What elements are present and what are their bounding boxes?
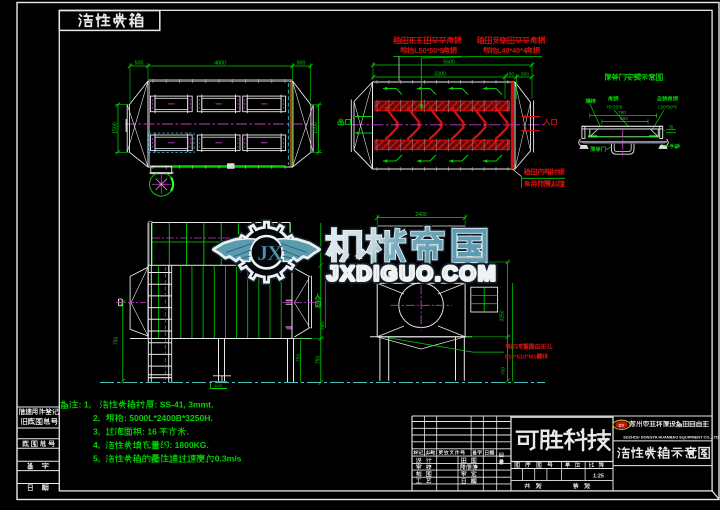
svg-text:2850: 2850 — [315, 297, 321, 308]
svg-text:SUZHOU DONGYA HUANBAO EQUIPMEN: SUZHOU DONGYA HUANBAO EQUIPMENT CO.,LTD — [623, 434, 719, 439]
svg-text:1500: 1500 — [313, 122, 319, 134]
svg-text:L50*50*5: L50*50*5 — [414, 47, 444, 55]
svg-text:L40*40*4: L40*40*4 — [497, 47, 527, 55]
svg-text:780: 780 — [320, 322, 326, 330]
svg-text:750: 750 — [501, 367, 507, 375]
svg-text:35: 35 — [669, 124, 674, 129]
svg-text:750: 750 — [114, 337, 120, 346]
svg-text:: 16: : 16 — [142, 427, 157, 437]
svg-text:: 1,: : 1, — [79, 400, 91, 410]
svg-text:JX: JX — [257, 241, 283, 265]
svg-text:2,: 2, — [93, 413, 100, 423]
svg-text:0.3m/s: 0.3m/s — [215, 454, 242, 464]
svg-text:2400: 2400 — [415, 212, 427, 218]
svg-text:5600: 5600 — [443, 60, 455, 66]
svg-text:500: 500 — [297, 61, 306, 67]
svg-text:1:25: 1:25 — [593, 474, 604, 480]
svg-text:3300: 3300 — [434, 72, 446, 78]
svg-text:: SS-41, 3mmt.: : SS-41, 3mmt. — [155, 400, 214, 410]
svg-text:500: 500 — [521, 72, 529, 78]
svg-text:JXDIGUO.COM: JXDIGUO.COM — [327, 262, 498, 286]
svg-text:: 1800KG.: : 1800KG. — [169, 440, 208, 450]
svg-text:750: 750 — [315, 356, 321, 365]
svg-text:500: 500 — [135, 61, 144, 67]
svg-text:780: 780 — [618, 110, 626, 115]
svg-text:DY: DY — [619, 423, 625, 428]
svg-text:L50*50*5: L50*50*5 — [658, 105, 677, 110]
svg-text:4800: 4800 — [214, 61, 226, 67]
svg-text:1500: 1500 — [113, 122, 119, 134]
svg-text:600: 600 — [620, 116, 628, 121]
svg-text:5,: 5, — [93, 454, 100, 464]
svg-text:610*510*M16: 610*510*M16 — [505, 354, 540, 360]
svg-text:.: . — [186, 427, 188, 437]
svg-text:75*75*6: 75*75*6 — [606, 105, 623, 110]
svg-text:4,: 4, — [93, 440, 100, 450]
svg-text:3,: 3, — [93, 427, 100, 437]
svg-text:3250: 3250 — [500, 310, 506, 321]
svg-text:: 5000L*2400B*3250H.: : 5000L*2400B*3250H. — [124, 413, 213, 423]
svg-text:750: 750 — [295, 354, 301, 362]
svg-text:450: 450 — [506, 72, 514, 78]
svg-text:-0.00: -0.00 — [214, 384, 223, 388]
